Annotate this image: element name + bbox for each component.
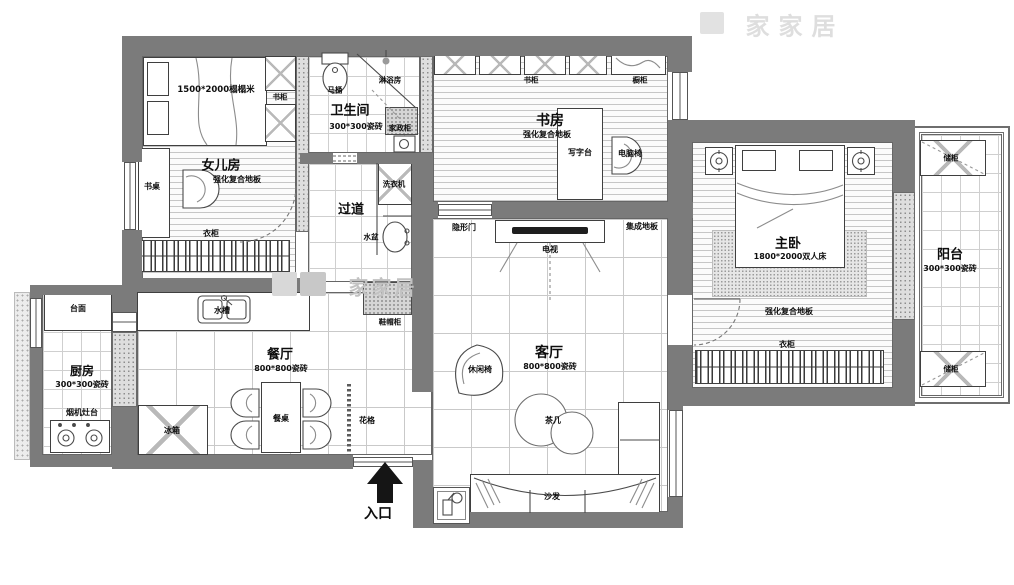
wall <box>420 202 438 218</box>
label-computer-chair: 电脑椅 <box>618 150 642 158</box>
label-shoe-cabinet: 鞋帽柜 <box>379 318 402 326</box>
room-label-hallway: 过道 <box>338 204 364 217</box>
room-label-study: 书房 <box>536 114 564 128</box>
label-utility-cabinet: 家政柜 <box>389 124 412 132</box>
sofa-chaise <box>618 402 660 476</box>
study-bookcase <box>434 53 476 75</box>
window <box>124 162 136 230</box>
pillow <box>147 62 169 96</box>
label-shower: 淋浴房 <box>379 76 402 84</box>
floor-label-study: 强化复合地板 <box>523 131 571 139</box>
label-basin: 水盆 <box>364 233 379 241</box>
label-fridge: 冰箱 <box>164 427 180 435</box>
wall <box>683 120 915 142</box>
room-label-daughter: 女儿房 <box>201 160 240 173</box>
label-study-bookcase: 书柜 <box>524 76 539 84</box>
wall <box>30 285 122 295</box>
study-bookcase <box>524 53 566 75</box>
floor-plan: 家家居 家家居 <box>0 0 1014 585</box>
label-tatami-bed: 1500*2000榻榻米 <box>177 86 254 95</box>
floor-label-dining: 800*800瓷砖 <box>254 365 308 373</box>
label-entrance: 入口 <box>364 507 392 521</box>
wall <box>668 56 692 72</box>
watermark-logo <box>700 12 724 34</box>
study-bookcase <box>569 53 607 75</box>
room-label-master: 主卧 <box>775 238 801 251</box>
wall <box>893 142 915 192</box>
watermark-text: 家家居 <box>349 272 418 301</box>
label-tv: 电视 <box>542 246 558 254</box>
wall-partition <box>296 56 309 232</box>
label-bookcase: 书柜 <box>273 93 288 101</box>
room-label-dining: 餐厅 <box>267 349 293 362</box>
label-hidden-door: 隐形门 <box>452 224 476 232</box>
label-leisure-chair: 休闲椅 <box>468 366 492 374</box>
label-writing-desk: 写字台 <box>568 149 592 157</box>
tv <box>512 227 588 234</box>
wall-exterior-texture <box>14 292 30 460</box>
room-label-living: 客厅 <box>535 346 563 360</box>
wall <box>668 345 692 390</box>
label-lattice: 花格 <box>359 417 375 425</box>
wall <box>122 36 692 56</box>
pillow <box>147 101 169 135</box>
watermark-logo <box>300 272 326 296</box>
label-countertop: 台面 <box>70 305 86 313</box>
window <box>672 72 688 120</box>
wall-partition <box>112 332 137 407</box>
wall <box>668 390 683 410</box>
room-label-kitchen: 厨房 <box>70 365 94 377</box>
study-bookcase <box>479 53 521 75</box>
floor-label-living: 800*800瓷砖 <box>523 363 577 371</box>
label-hood-stove: 烟机灶台 <box>66 409 98 417</box>
wall-partition <box>893 192 915 320</box>
label-sink: 水槽 <box>214 307 230 315</box>
floor-label-master: 强化复合地板 <box>765 308 813 316</box>
room-label-balcony: 阳台 <box>937 249 963 262</box>
wall <box>413 460 433 520</box>
wall <box>668 218 692 295</box>
label-dining-table: 餐桌 <box>273 415 289 423</box>
hidden-door-opening <box>438 204 492 216</box>
label-toilet: 马桶 <box>328 86 343 94</box>
wall <box>112 407 137 467</box>
study-cabinet <box>611 53 666 75</box>
label-washer: 洗衣机 <box>383 180 406 188</box>
bookcase <box>265 56 296 91</box>
pillow <box>799 150 833 171</box>
window <box>30 298 42 348</box>
desk <box>138 148 170 238</box>
entrance-arrow <box>367 462 403 503</box>
wall <box>357 153 420 164</box>
room-label-bathroom: 卫生间 <box>330 105 369 118</box>
pillow <box>742 150 776 171</box>
wall <box>122 36 142 162</box>
wall <box>112 455 353 469</box>
label-wardrobe-daughter: 衣柜 <box>203 230 219 238</box>
wall <box>492 202 693 218</box>
wardrobe-master <box>695 350 884 384</box>
label-integrated-floor: 集成地板 <box>626 223 658 231</box>
wall <box>683 388 915 406</box>
wall <box>893 320 915 393</box>
nightstand <box>847 147 875 175</box>
wall-partition <box>420 56 433 153</box>
wall <box>300 153 333 164</box>
window <box>669 410 683 497</box>
label-study-cabinet: 橱柜 <box>633 76 648 84</box>
floor-label-kitchen: 300*300瓷砖 <box>55 381 109 389</box>
bookcase <box>265 104 296 142</box>
watermark-text: 家家居 <box>746 7 845 42</box>
label-storage-bottom: 储柜 <box>944 365 959 373</box>
label-tea-table: 茶几 <box>545 417 561 425</box>
gas-stove <box>50 420 110 453</box>
floor-lamp <box>433 487 470 524</box>
floor-label-daughter: 强化复合地板 <box>213 176 261 184</box>
label-desk: 书桌 <box>144 183 160 191</box>
label-sofa: 沙发 <box>544 493 560 501</box>
sofa <box>470 474 660 514</box>
entrance-threshold <box>353 457 413 467</box>
wall <box>112 285 137 312</box>
wardrobe-daughter <box>138 240 290 272</box>
label-double-bed: 1800*2000双人床 <box>754 253 827 261</box>
label-storage-top: 储柜 <box>944 154 959 162</box>
label-wardrobe-master: 衣柜 <box>779 341 795 349</box>
kitchen-door-opening <box>112 312 137 332</box>
bathroom-door <box>333 156 357 161</box>
floor-label-balcony: 300*300瓷砖 <box>923 265 977 273</box>
watermark-logo <box>272 272 297 296</box>
floor-label-bathroom: 300*300瓷砖 <box>329 123 383 131</box>
nightstand <box>705 147 733 175</box>
